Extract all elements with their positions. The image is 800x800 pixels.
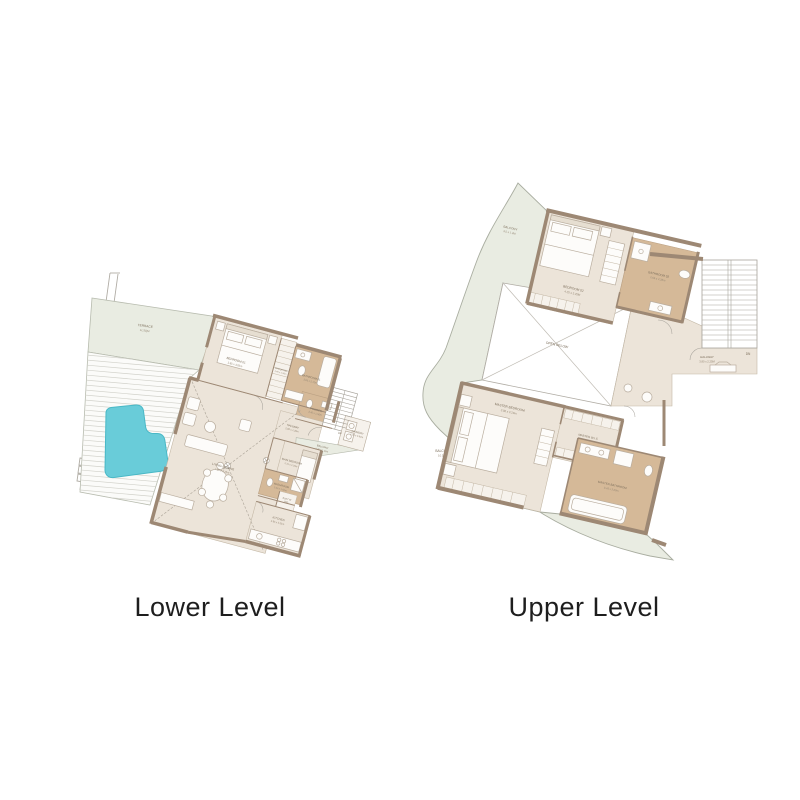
hallway-upper-label: HALLWAY <box>700 355 714 359</box>
stairs-upper: DN <box>702 260 757 356</box>
svg-text:3.80 x 2.25M: 3.80 x 2.25M <box>699 359 715 363</box>
lower-level-title: Lower Level <box>100 592 320 623</box>
upper-level-plan: BALCONY 10.5QM BALCONY 3.5 x 1.3M OPEN B… <box>410 168 780 580</box>
upper-level-title: Upper Level <box>468 592 700 623</box>
lower-level-plan: TERRACE 11.5QM <box>50 250 400 580</box>
dn-label: DN <box>746 352 751 356</box>
floorplan-sheet: { "colors": { "background": "#ffffff", "… <box>0 0 800 800</box>
